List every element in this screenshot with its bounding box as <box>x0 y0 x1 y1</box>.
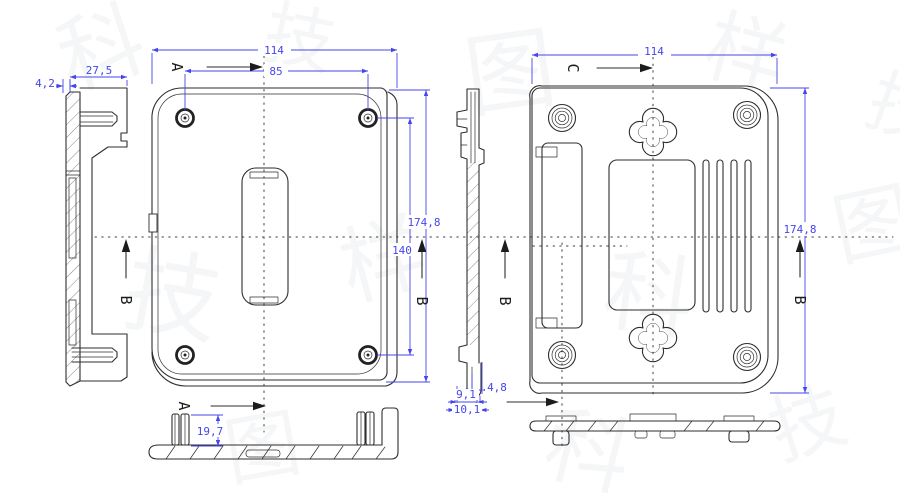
dim-front-height: 174,8 <box>407 216 440 229</box>
watermark-glyph: 科 <box>46 0 157 110</box>
dim-post-height: 19,7 <box>197 425 224 438</box>
section-label-a-top: A <box>168 62 186 71</box>
dim-front-hole-span-v: 140 <box>392 244 412 257</box>
screw-boss <box>734 102 761 129</box>
dim-front-width: 114 <box>264 44 284 57</box>
screw-hole <box>177 347 194 364</box>
section-label-c: C <box>564 63 582 72</box>
watermark-glyph: 图 <box>825 171 900 279</box>
technical-drawing-canvas: 科 技 图 样 技 样 科 图 图 科 技 技 <box>0 0 900 500</box>
dim-back-height: 174,8 <box>783 223 816 236</box>
dim-front-hole-span: 85 <box>269 65 282 78</box>
watermark-glyph: 样 <box>695 0 796 109</box>
screw-boss <box>734 344 761 371</box>
dim-profile-hook: 4,8 <box>487 381 507 394</box>
section-label-b-mid-right: B <box>496 296 514 305</box>
dim-left-step: 4,2 <box>35 77 55 90</box>
dim-left-depth: 27,5 <box>86 64 113 77</box>
section-label-b-mid-left: B <box>413 296 431 305</box>
dim-profile-inner: 9,1 <box>456 388 476 401</box>
screw-hole <box>360 347 377 364</box>
drawing-sheet: 科 技 图 样 技 样 科 图 图 科 技 技 <box>0 0 900 500</box>
section-label-b-left: B <box>117 295 135 304</box>
watermark-glyph: 图 <box>458 15 562 132</box>
section-arrows <box>122 63 804 410</box>
watermark-glyph: 技 <box>856 59 900 160</box>
watermark-glyph: 科 <box>535 394 641 500</box>
dim-profile-outer: 10,1 <box>454 403 481 416</box>
screw-hole <box>177 110 194 127</box>
dim-back-width: 114 <box>644 45 664 58</box>
watermark-glyph: 科 <box>597 238 701 355</box>
section-label-a-bottom: A <box>175 401 193 410</box>
section-label-b-right: B <box>791 295 809 304</box>
watermark-glyph: 技 <box>758 370 857 477</box>
center-profile-view <box>457 89 484 397</box>
screw-hole <box>360 110 377 127</box>
